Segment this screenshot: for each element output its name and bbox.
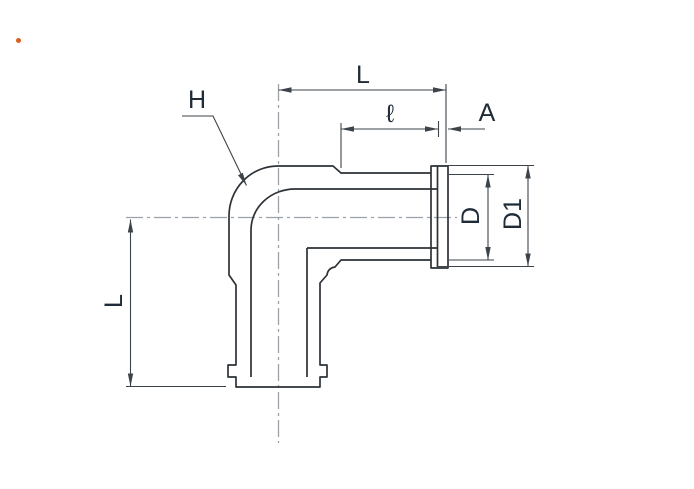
label-length-side: L	[100, 294, 128, 308]
dimension-labels: L ℓ A H D D1 L	[100, 61, 527, 308]
elbow-fitting-drawing: L ℓ A H D D1 L	[0, 0, 694, 489]
drawing-canvas: L ℓ A H D D1 L	[0, 0, 694, 489]
label-thread-length: ℓ	[386, 100, 395, 128]
arrow-top-length-right-icon	[433, 87, 446, 92]
label-flange-diameter: D1	[499, 198, 527, 230]
arrow-flange-diameter-bottom-icon	[525, 254, 530, 267]
arrow-side-length-bottom-icon	[128, 374, 133, 387]
dimensions	[126, 84, 534, 387]
dim-thread-length	[341, 123, 438, 168]
dim-side-length	[126, 220, 226, 387]
arrow-thread-left-icon	[341, 126, 354, 131]
arrow-diameter-top-icon	[485, 175, 490, 188]
label-flange-thickness: A	[479, 99, 496, 127]
elbow-outline	[228, 166, 431, 387]
arrow-side-length-top-icon	[128, 220, 133, 233]
leader-h-line	[182, 116, 247, 186]
arrow-diameter-bottom-icon	[485, 247, 490, 260]
fitting-body	[228, 166, 448, 387]
arrow-flange-diameter-top-icon	[525, 166, 530, 179]
arrow-flange-thickness-icon	[448, 126, 461, 131]
label-length-top: L	[356, 61, 370, 89]
arrow-thread-right-icon	[425, 126, 438, 131]
accent-dot	[16, 38, 21, 43]
label-bend-h: H	[188, 86, 206, 114]
arrow-top-length-left-icon	[279, 87, 292, 92]
label-diameter: D	[457, 207, 485, 225]
dimension-arrowheads	[128, 87, 531, 386]
dim-top-length	[279, 84, 447, 163]
centerlines	[126, 84, 457, 443]
